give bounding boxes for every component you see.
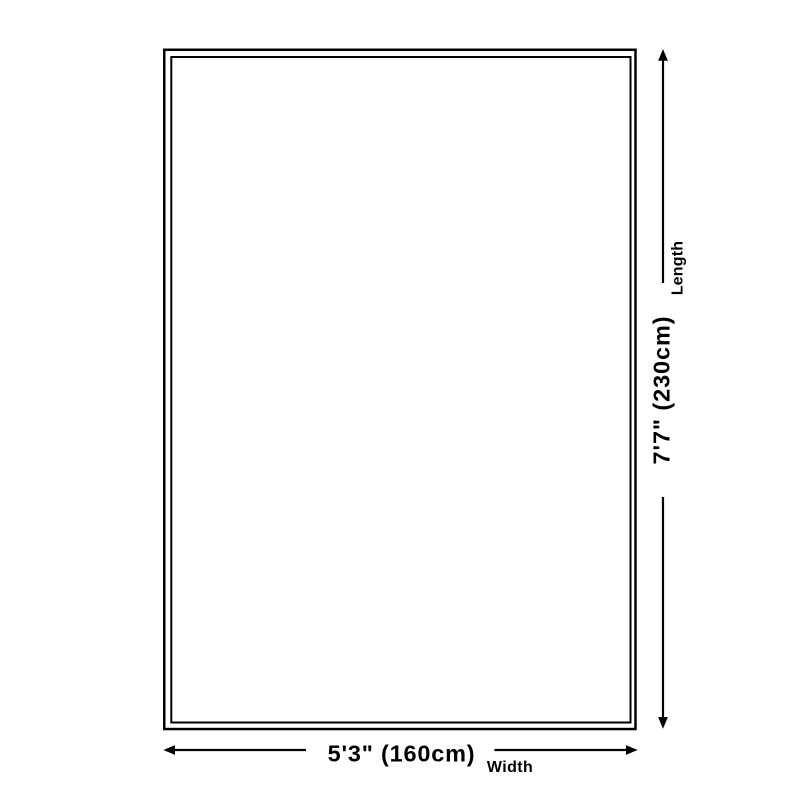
svg-text:7'7" (230cm): 7'7" (230cm) [649,315,675,464]
svg-text:5'3" (160cm): 5'3" (160cm) [328,741,476,767]
svg-text:Length: Length [670,241,687,296]
svg-text:Width: Width [487,759,533,776]
